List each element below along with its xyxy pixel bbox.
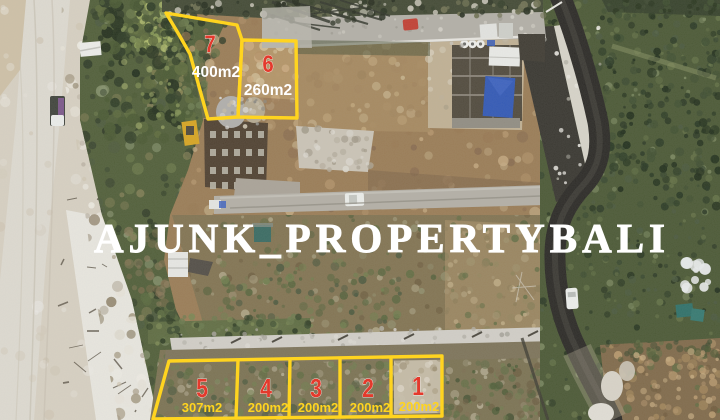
svg-text:260m2: 260m2 xyxy=(244,82,292,99)
svg-text:1: 1 xyxy=(412,372,424,402)
svg-text:307m2: 307m2 xyxy=(182,400,222,415)
svg-text:400m2: 400m2 xyxy=(192,64,240,81)
svg-text:200m2: 200m2 xyxy=(248,400,288,415)
svg-text:200m2: 200m2 xyxy=(350,400,390,415)
svg-text:200m2: 200m2 xyxy=(298,400,338,415)
svg-text:6: 6 xyxy=(262,50,273,77)
svg-text:200m2: 200m2 xyxy=(399,399,439,414)
svg-text:7: 7 xyxy=(204,30,215,57)
svg-text:AJUNK_PROPERTYBALI: AJUNK_PROPERTYBALI xyxy=(94,215,670,261)
